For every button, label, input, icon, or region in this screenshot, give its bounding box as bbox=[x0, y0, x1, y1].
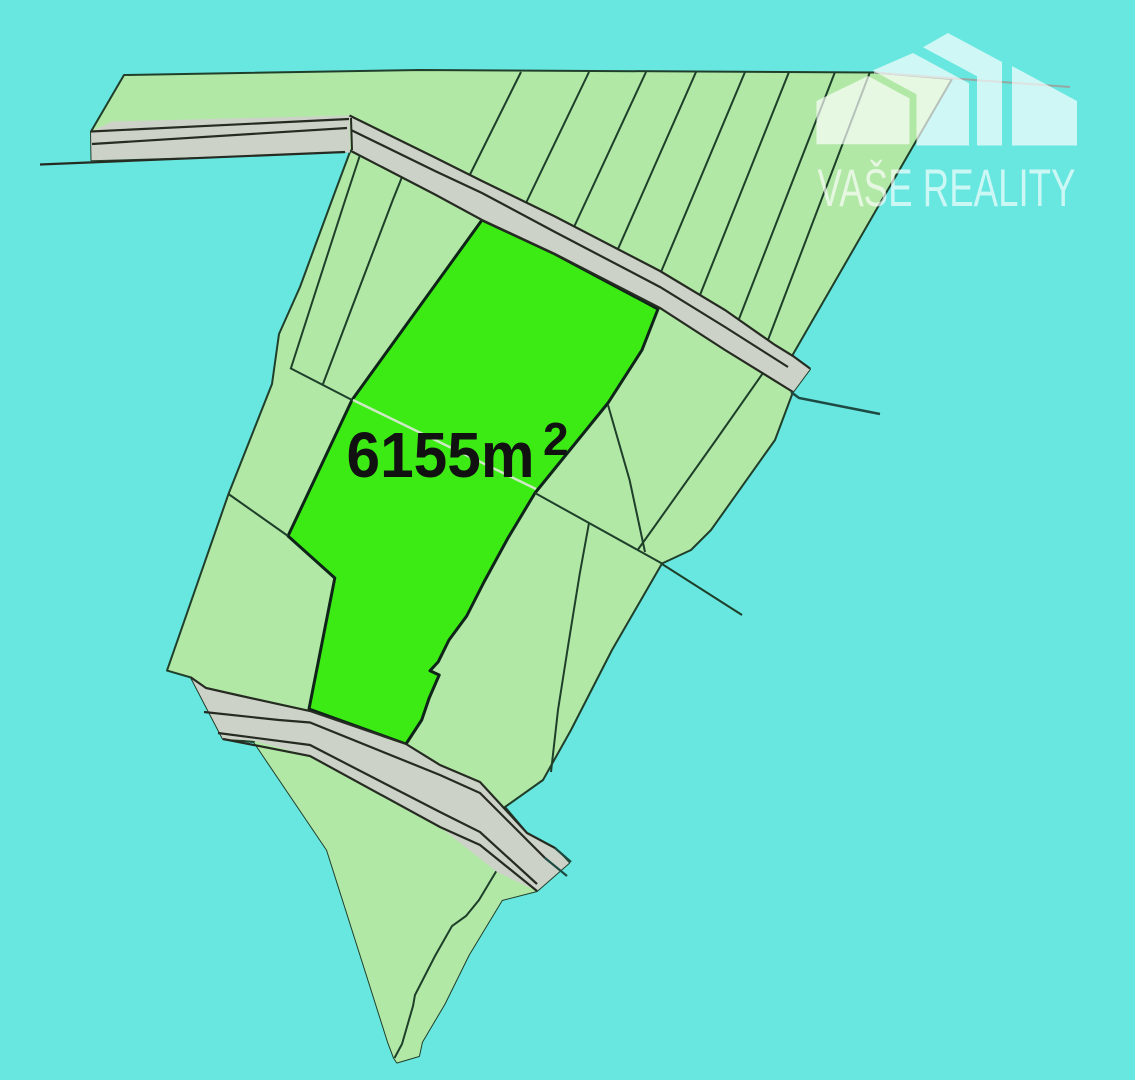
svg-text:6155m: 6155m bbox=[347, 419, 535, 491]
svg-text:2: 2 bbox=[543, 413, 569, 465]
svg-text:VAŠE REALITY: VAŠE REALITY bbox=[818, 159, 1076, 218]
